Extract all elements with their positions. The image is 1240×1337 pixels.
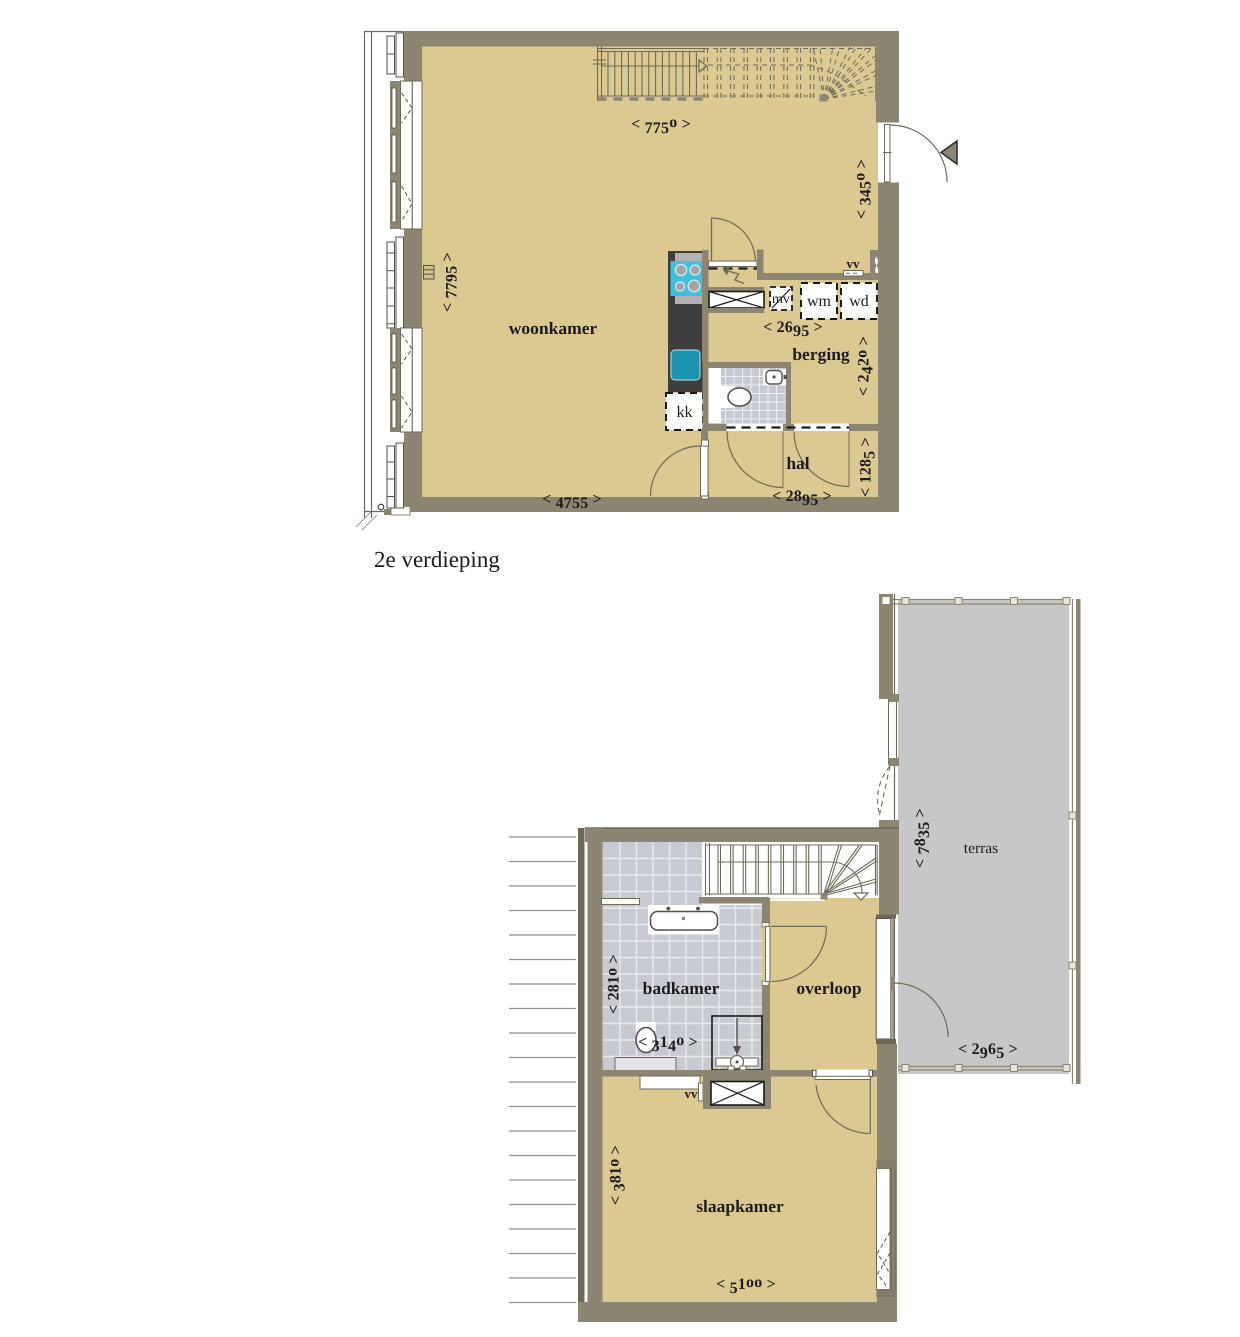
svg-text:berging: berging [792,344,850,364]
svg-text:wm: wm [807,293,832,310]
svg-text:terras: terras [964,840,998,857]
svg-text:slaapkamer: slaapkamer [696,1196,784,1216]
svg-text:woonkamer: woonkamer [509,318,598,338]
svg-text:< 281o >: < 281o > [604,954,623,1014]
svg-text:vv: vv [685,1086,699,1101]
svg-text:vv: vv [847,256,861,271]
svg-text:wd: wd [849,293,869,310]
svg-text:2e verdieping: 2e verdieping [374,547,500,572]
svg-text:mv: mv [772,292,790,307]
svg-text:overloop: overloop [796,978,861,998]
svg-text:badkamer: badkamer [643,978,720,998]
svg-text:kk: kk [677,404,693,421]
svg-text:hal: hal [786,453,809,473]
